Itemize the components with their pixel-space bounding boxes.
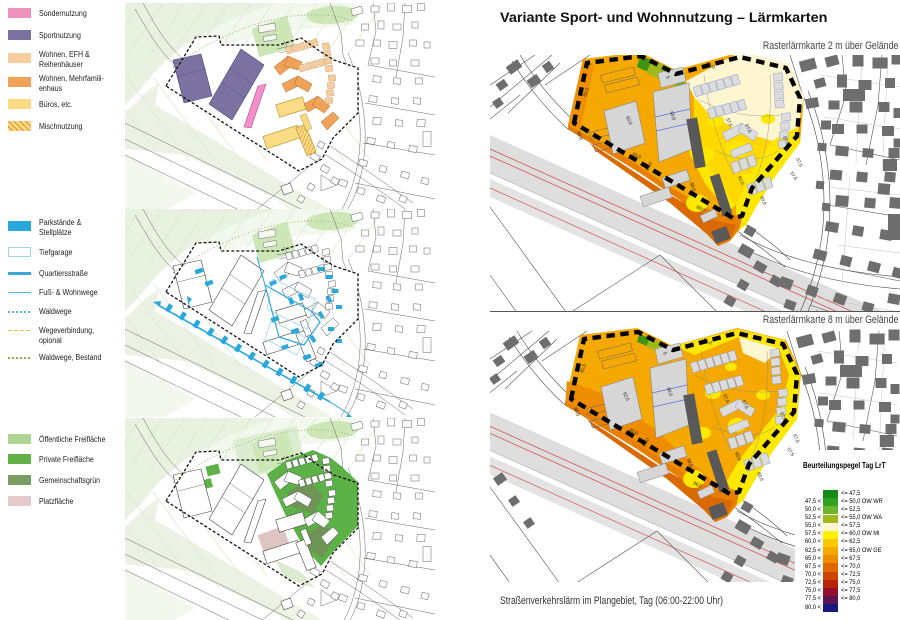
svg-text:57,5: 57,5 — [789, 171, 798, 182]
svg-text:57,5: 57,5 — [795, 157, 803, 168]
svg-text:57,5: 57,5 — [792, 433, 800, 444]
svg-text:60,0: 60,0 — [759, 195, 767, 206]
svg-text:60,0: 60,0 — [756, 471, 764, 482]
